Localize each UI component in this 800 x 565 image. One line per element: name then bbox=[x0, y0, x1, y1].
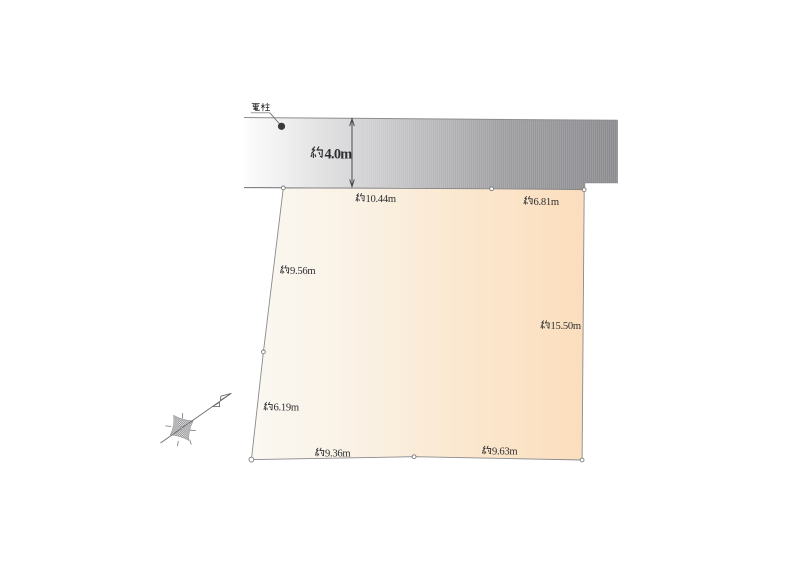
svg-text:6.19m: 6.19m bbox=[274, 403, 300, 414]
svg-text:10.44m: 10.44m bbox=[366, 194, 397, 205]
svg-text:15.50m: 15.50m bbox=[551, 321, 582, 332]
svg-text:9.36m: 9.36m bbox=[325, 448, 351, 459]
svg-text:9.63m: 9.63m bbox=[492, 446, 518, 457]
svg-text:6.81m: 6.81m bbox=[534, 197, 560, 208]
svg-text:9.56m: 9.56m bbox=[290, 266, 316, 277]
svg-text:4.0m: 4.0m bbox=[325, 147, 353, 163]
